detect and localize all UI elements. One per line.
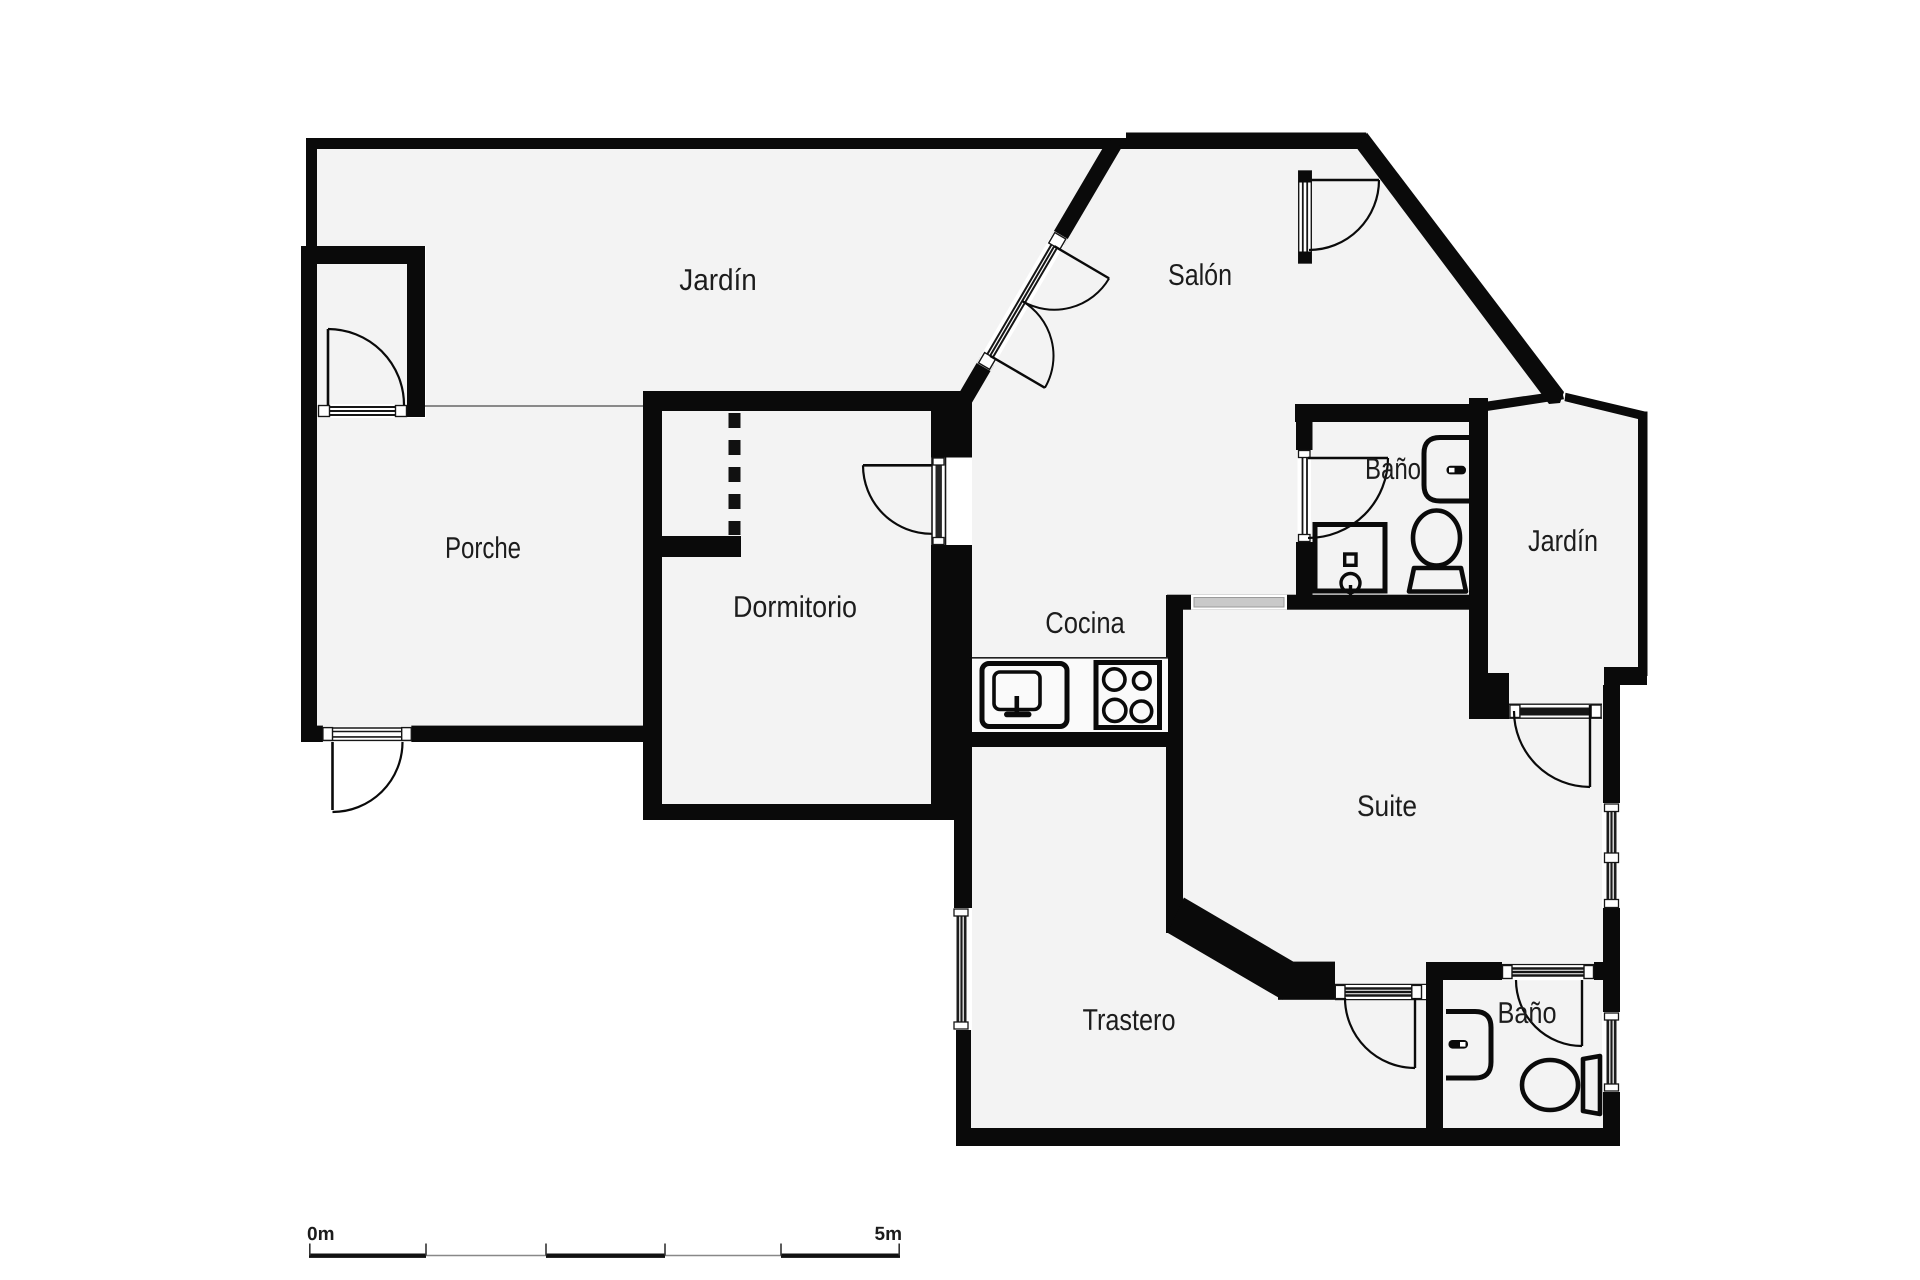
- svg-text:Trastero: Trastero: [1082, 1004, 1175, 1037]
- svg-text:Cocina: Cocina: [1045, 607, 1125, 640]
- svg-text:Suite: Suite: [1357, 790, 1417, 823]
- svg-text:Jardín: Jardín: [679, 264, 757, 297]
- svg-text:0m: 0m: [307, 1224, 335, 1245]
- svg-text:Baño: Baño: [1365, 453, 1421, 486]
- svg-text:Jardín: Jardín: [1528, 525, 1598, 558]
- svg-text:5m: 5m: [875, 1224, 903, 1245]
- svg-text:Salón: Salón: [1168, 259, 1232, 292]
- svg-text:Baño: Baño: [1497, 997, 1556, 1030]
- svg-text:Dormitorio: Dormitorio: [733, 591, 857, 624]
- svg-text:Porche: Porche: [445, 532, 521, 565]
